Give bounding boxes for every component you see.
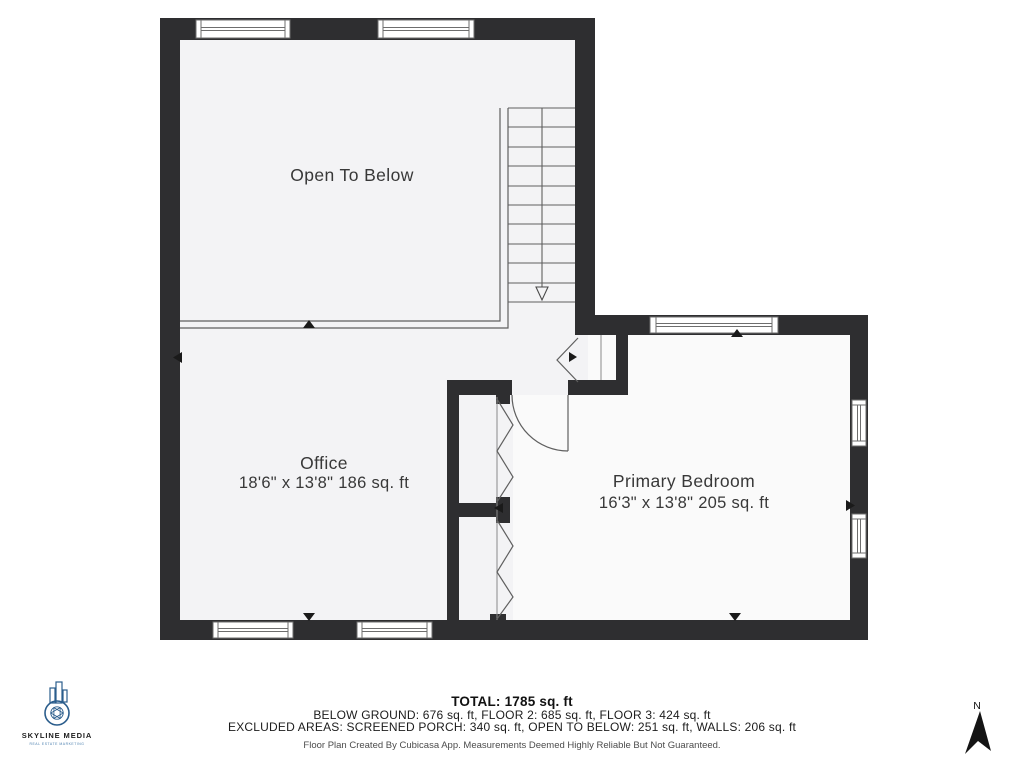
north-compass: N [965, 700, 991, 754]
room-label-office: Office [300, 453, 348, 473]
window [852, 400, 866, 446]
logo-skyline-camera-icon [45, 682, 69, 725]
logo-name: SKYLINE MEDIA [22, 731, 92, 740]
footer-disclaimer: Floor Plan Created By Cubicasa App. Meas… [303, 740, 720, 751]
footer-excluded: EXCLUDED AREAS: SCREENED PORCH: 340 sq. … [228, 720, 796, 734]
wall-left [160, 18, 180, 640]
window [357, 622, 432, 638]
window [650, 317, 778, 333]
room-fill-bedroom-strip [513, 395, 588, 620]
floor-plan-canvas: Open To Below Office 18'6" x 13'8" 186 s… [0, 0, 1024, 768]
wall-bedroom-right [850, 315, 868, 640]
wall-hall-bottom-right [568, 380, 628, 395]
window [378, 20, 474, 38]
window [852, 514, 866, 558]
north-arrow-icon [965, 711, 991, 754]
room-label-open-to-below: Open To Below [290, 165, 414, 185]
window [196, 20, 290, 38]
room-label-primary-bedroom: Primary Bedroom [613, 471, 755, 491]
room-dims-primary-bedroom: 16'3" x 13'8" 205 sq. ft [599, 494, 769, 512]
room-dims-office: 18'6" x 13'8" 186 sq. ft [239, 474, 409, 492]
wall-stairs-right [575, 18, 595, 335]
wall-stub-closet-top [496, 395, 510, 404]
window [213, 622, 293, 638]
logo-tagline: REAL ESTATE MARKETING [29, 742, 84, 746]
wall-office-right [447, 380, 459, 640]
footer: TOTAL: 1785 sq. ft BELOW GROUND: 676 sq.… [228, 694, 796, 751]
logo: SKYLINE MEDIA REAL ESTATE MARKETING [22, 682, 92, 746]
footer-total: TOTAL: 1785 sq. ft [451, 694, 573, 709]
wall-stub-closet-bottom [490, 614, 506, 626]
floor-plan-page: Open To Below Office 18'6" x 13'8" 186 s… [0, 0, 1024, 768]
north-label: N [973, 700, 981, 712]
